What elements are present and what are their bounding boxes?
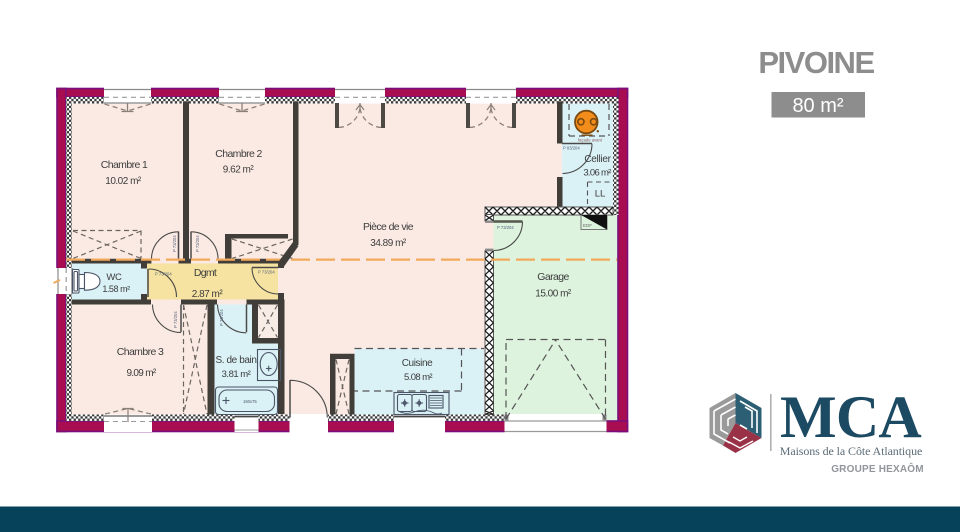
- svg-text:Maisons de la Côte Atlantique: Maisons de la Côte Atlantique: [780, 444, 922, 458]
- svg-text:LL: LL: [595, 189, 606, 200]
- svg-text:MCA: MCA: [780, 384, 921, 450]
- svg-text:PIVOINE: PIVOINE: [758, 45, 874, 80]
- svg-text:P 73/204: P 73/204: [497, 225, 514, 230]
- svg-text:Cellier: Cellier: [584, 154, 611, 165]
- svg-text:Chambre 3: Chambre 3: [117, 346, 164, 358]
- svg-text:P 73/204: P 73/204: [173, 311, 178, 328]
- svg-text:160x75: 160x75: [243, 399, 257, 404]
- svg-text:3.81 m²: 3.81 m²: [222, 369, 251, 380]
- svg-text:9.62 m²: 9.62 m²: [223, 165, 255, 176]
- svg-text:EDF: EDF: [583, 223, 592, 228]
- svg-text:5.08 m²: 5.08 m²: [404, 372, 432, 383]
- svg-text:34.89 m²: 34.89 m²: [370, 238, 407, 249]
- svg-text:Pièce de vie: Pièce de vie: [363, 221, 414, 233]
- svg-text:Cuisine: Cuisine: [402, 358, 433, 369]
- svg-text:Chambre 1: Chambre 1: [101, 159, 148, 171]
- svg-text:9.09 m²: 9.09 m²: [126, 368, 156, 379]
- svg-text:façade avant: façade avant: [578, 138, 603, 143]
- svg-text:P 73/204: P 73/204: [219, 309, 224, 326]
- svg-text:2.87 m²: 2.87 m²: [192, 289, 224, 300]
- svg-text:WC: WC: [106, 272, 122, 283]
- svg-text:80 m²: 80 m²: [792, 95, 843, 117]
- svg-text:P 73/204: P 73/204: [195, 235, 200, 252]
- svg-text:1.58 m²: 1.58 m²: [102, 284, 130, 294]
- svg-text:Dgmt: Dgmt: [194, 267, 217, 279]
- svg-text:10.02 m²: 10.02 m²: [105, 176, 142, 187]
- svg-text:P 83/204: P 83/204: [563, 146, 580, 151]
- svg-text:15.00 m²: 15.00 m²: [535, 289, 572, 300]
- svg-text:Chambre 2: Chambre 2: [215, 148, 262, 160]
- svg-text:P 73/204: P 73/204: [172, 235, 177, 252]
- svg-text:3.06 m²: 3.06 m²: [583, 168, 611, 179]
- svg-text:P 73/204: P 73/204: [258, 270, 275, 275]
- svg-text:GROUPE HEXAÔM: GROUPE HEXAÔM: [831, 462, 924, 475]
- svg-text:S. de bain: S. de bain: [215, 355, 256, 366]
- svg-text:P 73/204: P 73/204: [155, 272, 172, 277]
- svg-text:Garage: Garage: [537, 271, 569, 283]
